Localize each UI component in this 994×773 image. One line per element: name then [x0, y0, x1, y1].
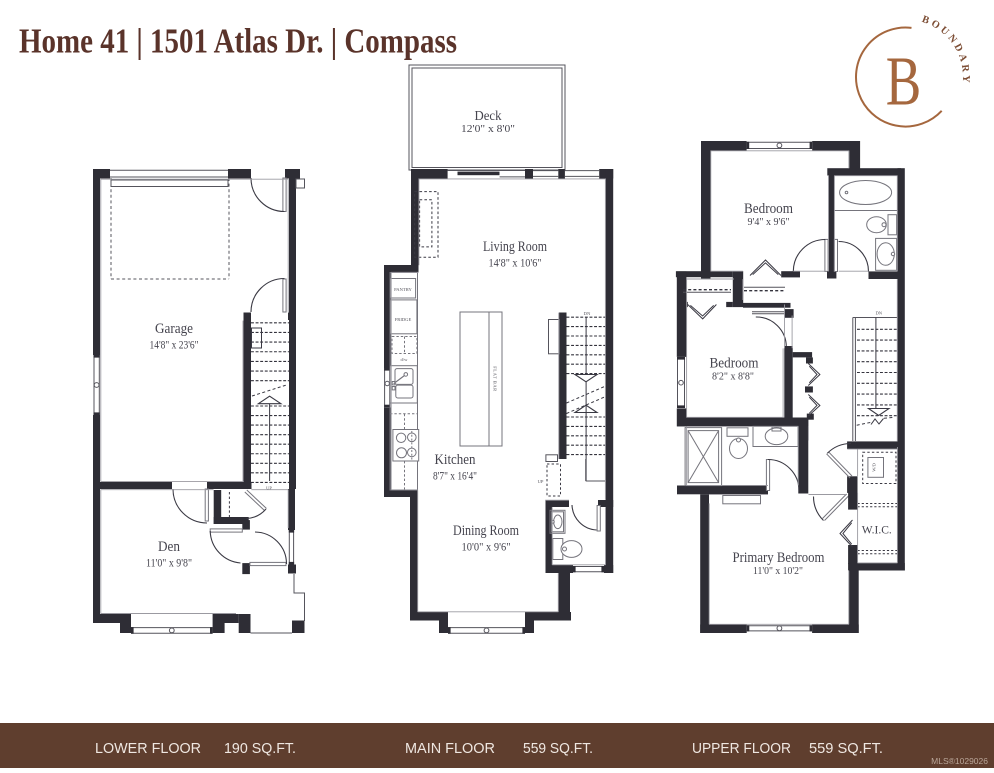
svg-text:UPPER FLOOR: UPPER FLOOR [692, 740, 791, 757]
svg-text:10'0" x 9'6": 10'0" x 9'6" [462, 542, 511, 554]
svg-text:Garage: Garage [155, 321, 193, 337]
svg-text:Primary Bedroom: Primary Bedroom [733, 550, 826, 566]
svg-text:d/w: d/w [401, 357, 409, 362]
svg-text:9'4" x 9'6": 9'4" x 9'6" [748, 216, 790, 228]
svg-text:559 SQ.FT.: 559 SQ.FT. [523, 740, 593, 757]
svg-text:B: B [886, 44, 921, 121]
svg-text:Deck: Deck [475, 108, 502, 123]
svg-text:Bedroom: Bedroom [744, 201, 794, 217]
svg-text:559 SQ.FT.: 559 SQ.FT. [809, 740, 883, 757]
svg-text:W.I.C.: W.I.C. [862, 525, 892, 537]
svg-text:12'0" x 8'0": 12'0" x 8'0" [461, 123, 515, 135]
svg-text:MLS®1029026: MLS®1029026 [931, 756, 988, 766]
svg-text:DN: DN [584, 311, 591, 316]
svg-text:Home 41 | 1501 Atlas Dr. | Com: Home 41 | 1501 Atlas Dr. | Compass [19, 23, 457, 61]
svg-text:8'7" x 16'4": 8'7" x 16'4" [433, 471, 477, 483]
svg-text:14'8" x 23'6": 14'8" x 23'6" [150, 340, 199, 352]
svg-text:Bedroom: Bedroom [710, 356, 760, 372]
svg-text:Dining Room: Dining Room [453, 523, 520, 539]
svg-text:FLAT BAR: FLAT BAR [493, 366, 498, 392]
svg-text:190 SQ.FT.: 190 SQ.FT. [224, 740, 296, 757]
svg-text:UP: UP [538, 479, 544, 484]
svg-text:8'2" x 8'8": 8'2" x 8'8" [712, 370, 754, 382]
svg-text:11'0" x 10'2": 11'0" x 10'2" [753, 565, 803, 577]
svg-text:14'8" x 10'6": 14'8" x 10'6" [489, 258, 542, 270]
svg-text:MAIN FLOOR: MAIN FLOOR [405, 740, 495, 757]
svg-text:Den: Den [158, 539, 181, 555]
svg-text:W/D: W/D [872, 463, 877, 472]
svg-text:PANTRY: PANTRY [394, 287, 412, 292]
svg-text:11'0" x 9'8": 11'0" x 9'8" [146, 558, 192, 570]
svg-text:DN: DN [875, 311, 882, 316]
svg-text:Living Room: Living Room [483, 239, 548, 255]
svg-text:Kitchen: Kitchen [435, 452, 477, 468]
svg-text:LOWER FLOOR: LOWER FLOOR [95, 740, 201, 757]
svg-text:FRIDGE: FRIDGE [395, 317, 412, 322]
